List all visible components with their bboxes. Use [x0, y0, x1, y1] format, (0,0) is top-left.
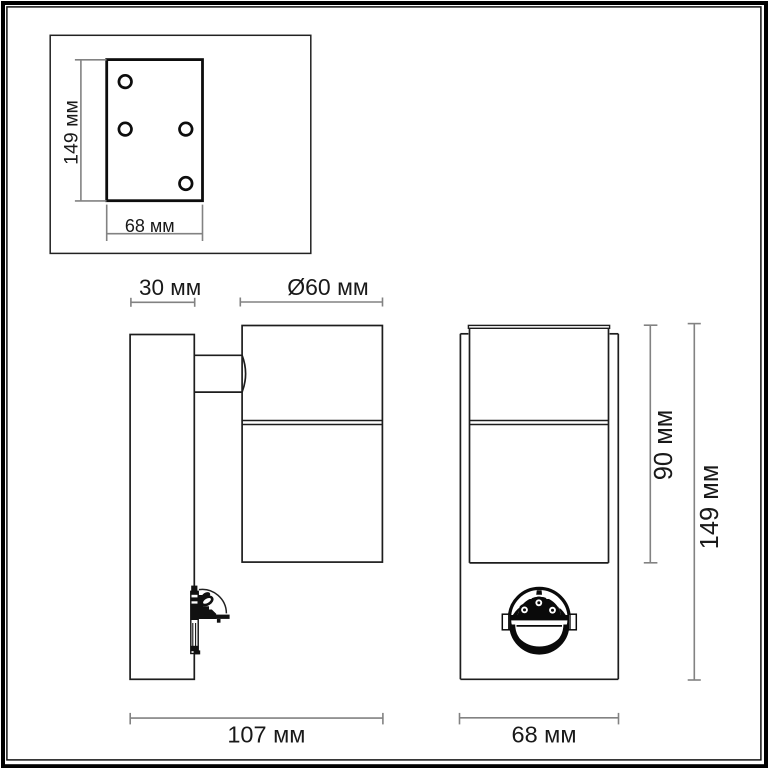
- svg-text:149 мм: 149 мм: [696, 465, 724, 550]
- svg-text:68 мм: 68 мм: [125, 216, 175, 236]
- svg-text:107 мм: 107 мм: [227, 722, 305, 748]
- svg-text:Ø60 мм: Ø60 мм: [287, 274, 369, 300]
- svg-text:90 мм: 90 мм: [650, 410, 678, 481]
- svg-text:149 мм: 149 мм: [60, 100, 82, 165]
- svg-text:68 мм: 68 мм: [512, 722, 577, 748]
- svg-text:30 мм: 30 мм: [139, 275, 201, 300]
